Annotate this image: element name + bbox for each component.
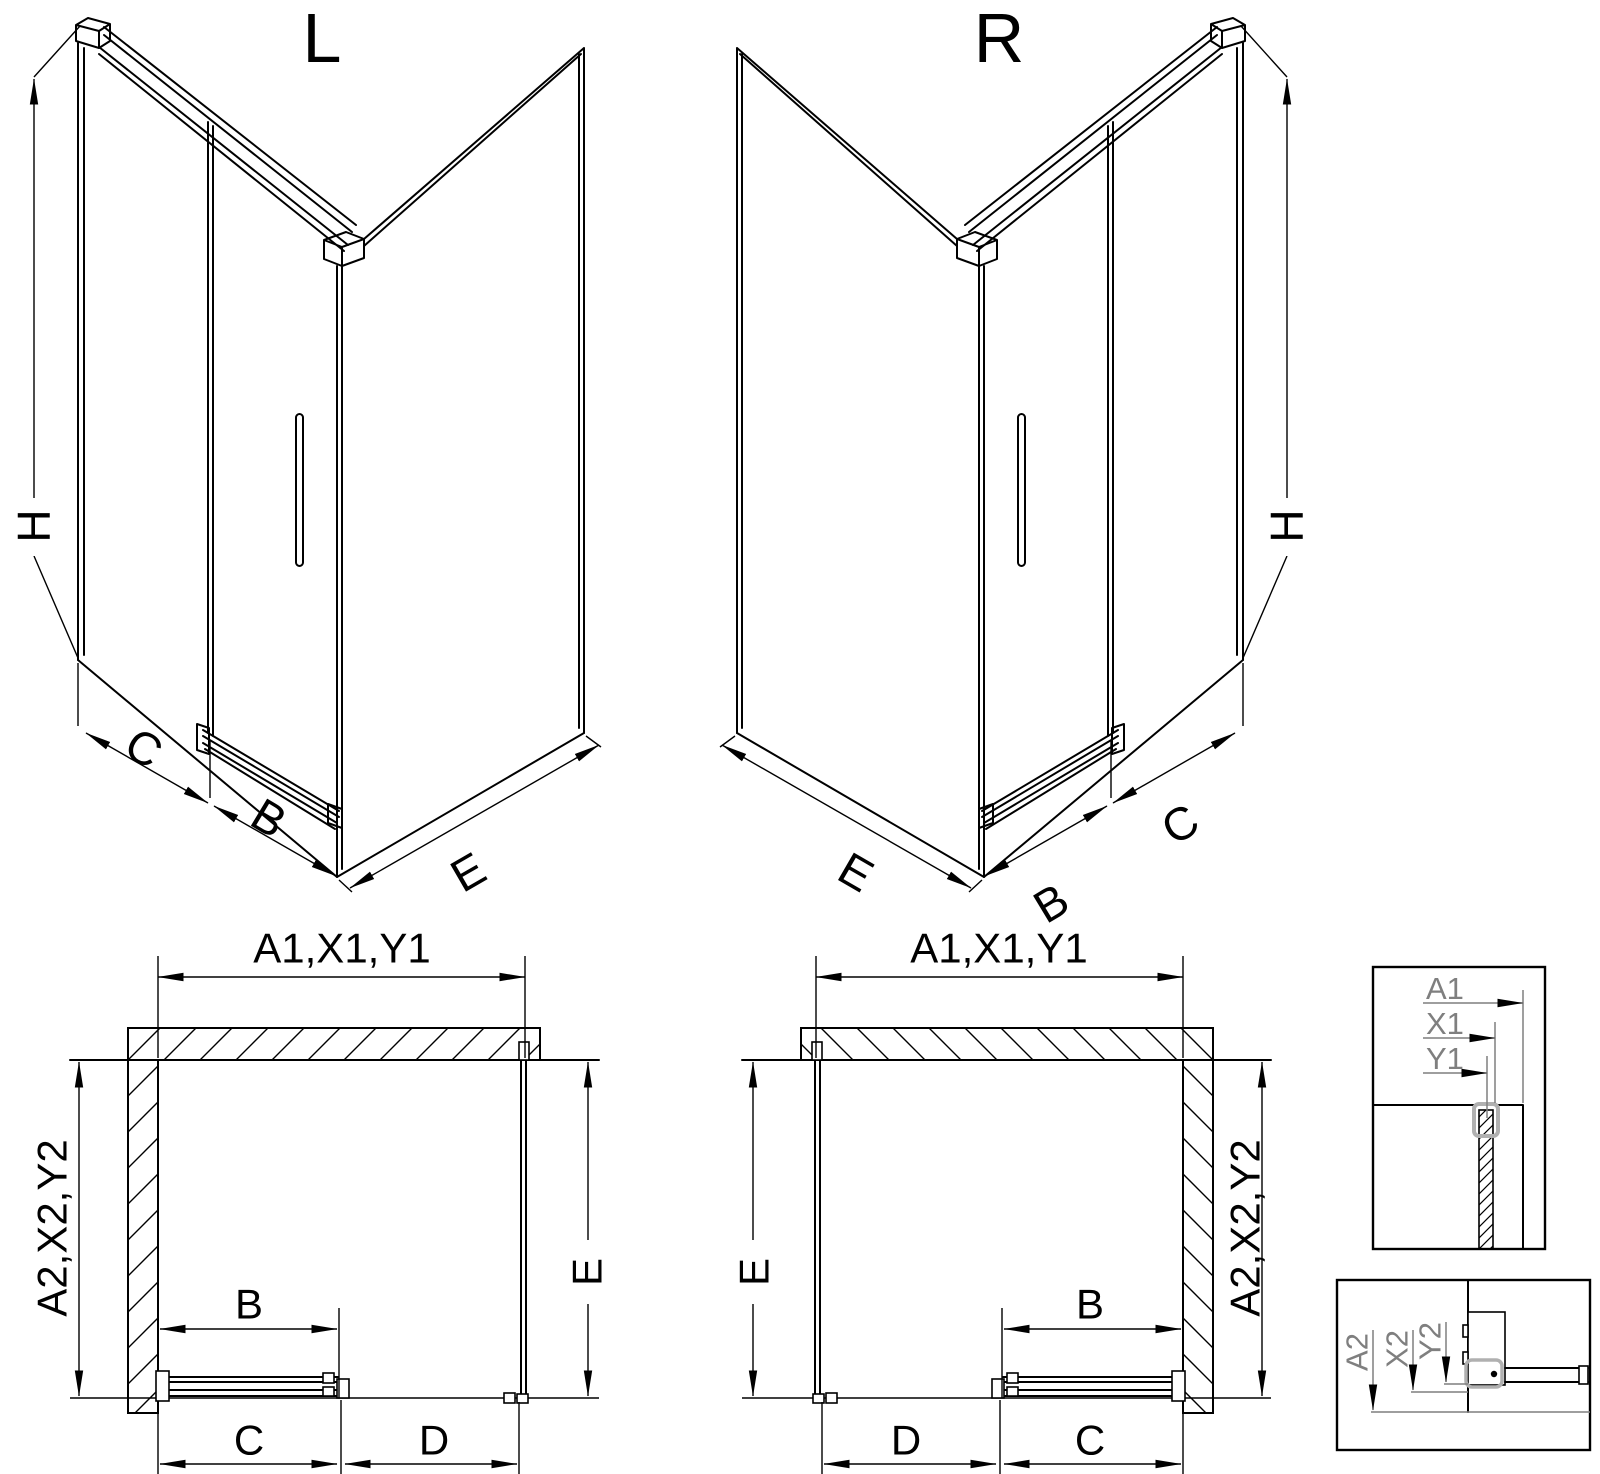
detail-track-end — [1579, 1366, 1588, 1384]
plan-right-top-label: A1,X1,Y1 — [910, 925, 1087, 972]
door-roller-b — [323, 1387, 334, 1396]
detail-door-profile — [1468, 1312, 1505, 1385]
wall-top-band — [128, 1028, 540, 1060]
h-extension-lines — [34, 26, 80, 658]
detail-x1-label: X1 — [1426, 1006, 1464, 1041]
shower-enclosure-technical-drawing: L H C B E R H C B E — [0, 0, 1600, 1474]
door-track-lines — [157, 1377, 348, 1396]
detail-a1-label: A1 — [1426, 971, 1464, 1006]
detail-x2-label: X2 — [1380, 1330, 1415, 1368]
dim-label-c-right: C — [1152, 793, 1207, 855]
dim-label-e-left: E — [442, 842, 495, 902]
detail-y1-label: Y1 — [1426, 1041, 1464, 1076]
dim-label-e-right: E — [830, 842, 883, 902]
return-panel-edges — [364, 48, 584, 733]
side-glass-foot — [517, 1394, 528, 1403]
plan-left-d-label: D — [419, 1417, 449, 1464]
plan-enclosure-art — [70, 956, 599, 1474]
detail-y2-label: Y2 — [1413, 1322, 1448, 1360]
fixed-panel-end-block — [504, 1393, 515, 1403]
corner-cap-block — [324, 232, 364, 266]
detail-track-lines — [1505, 1368, 1588, 1382]
dim-label-c-left: C — [116, 717, 171, 779]
side-glass-top-bracket — [519, 1042, 529, 1060]
plan-left-side-label: A2,X2,Y2 — [29, 1139, 76, 1316]
dim-label-h-right: H — [1261, 509, 1313, 542]
plan-left-e-label: E — [564, 1258, 611, 1286]
dim-label-b-left: B — [242, 788, 295, 848]
dim-label-h-left: H — [8, 509, 60, 542]
door-roller-a — [323, 1373, 334, 1383]
detail-roller-axle — [1491, 1371, 1497, 1377]
detail-a2-label: A2 — [1340, 1333, 1375, 1371]
detail-top-glass-section — [1479, 1110, 1493, 1249]
detail-top-wall-lines — [1373, 1105, 1523, 1249]
iso-left-title: L — [303, 0, 342, 77]
plan-right-side-label: A2,X2,Y2 — [1222, 1139, 1269, 1316]
detail-door-notch-a — [1463, 1325, 1468, 1337]
detail-bottom-frame — [1337, 1280, 1590, 1450]
track-wall-block — [156, 1371, 169, 1401]
corner-vertical-edge — [337, 266, 342, 877]
detail-bottom-view: A2 X2 Y2 — [1337, 1280, 1590, 1450]
top-cap-block — [76, 18, 110, 48]
door-handle — [296, 414, 303, 566]
iso-right-title: R — [974, 0, 1025, 77]
plan-right-b-label: B — [1076, 1281, 1104, 1328]
technical-diagram-svg: L H C B E R H C B E — [0, 0, 1600, 1474]
iso-right-view: R H C B E — [830, 0, 1313, 933]
left-panel-edge — [78, 43, 84, 660]
plan-right-c-label: C — [1075, 1417, 1105, 1464]
door-divider-edge — [208, 122, 213, 736]
plan-right-art-mirrored — [742, 956, 1271, 1474]
plan-left-b-label: B — [235, 1281, 263, 1328]
plan-right-d-label: D — [891, 1417, 921, 1464]
iso-right-art-mirrored — [720, 18, 1287, 892]
plan-left-c-label: C — [234, 1417, 264, 1464]
iso-left-view: L H C B E — [8, 0, 494, 902]
side-glass-panel — [521, 1060, 526, 1402]
detail-top-view: A1 X1 Y1 — [1373, 967, 1545, 1249]
wall-left-band — [128, 1060, 158, 1413]
floor-edges — [78, 660, 584, 877]
cd-extension-lines — [158, 1400, 519, 1474]
plan-left-top-label: A1,X1,Y1 — [253, 925, 430, 972]
plan-right-e-label: E — [731, 1258, 778, 1286]
